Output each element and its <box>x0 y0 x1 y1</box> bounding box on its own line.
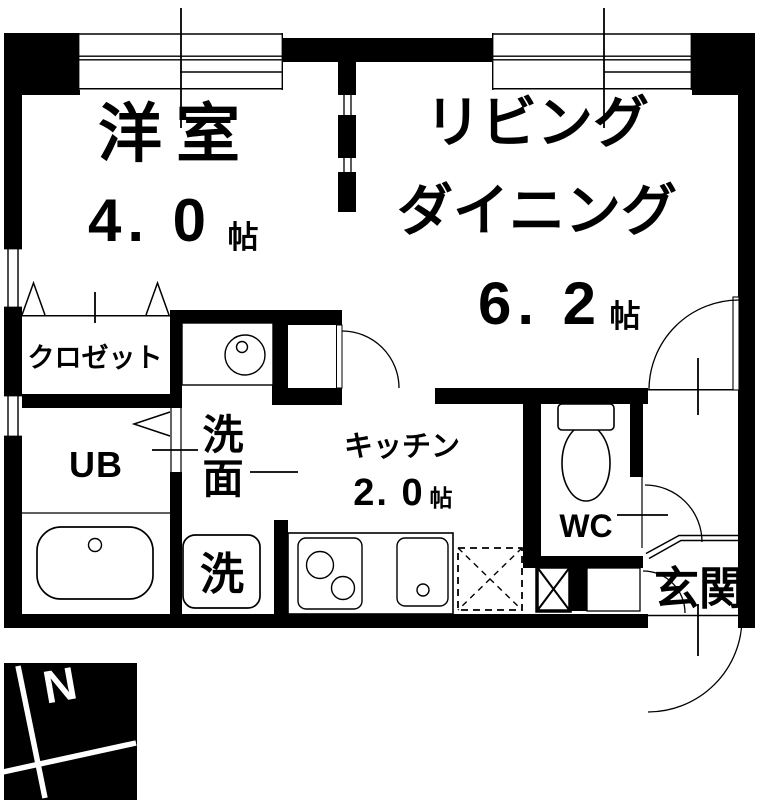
window-left-western <box>4 248 22 308</box>
label-entrance: 玄関 <box>654 563 744 614</box>
wall-living-south <box>435 388 648 404</box>
kitchen-sink-drain-icon <box>417 584 429 596</box>
wall-washroom-south <box>272 388 342 405</box>
bathtub-icon <box>37 527 153 599</box>
wall-bottom-left <box>4 614 648 628</box>
wall-washroom-right-lower <box>274 520 288 614</box>
label-living-line1: リビング <box>425 91 649 154</box>
wall-ub-right <box>170 472 182 614</box>
burner-icon <box>307 552 334 579</box>
sink-faucet-icon <box>237 342 248 353</box>
wall-left <box>4 38 22 628</box>
compass: N <box>3 657 137 800</box>
wall-wc-right <box>630 396 643 477</box>
label-kitchen-unit: 帖 <box>430 485 453 511</box>
wall-closet-right <box>170 310 182 408</box>
partition-panel <box>338 115 356 158</box>
label-western-size: 4. 0 <box>88 187 212 254</box>
label-wc: WC <box>559 508 612 544</box>
label-living-line2: ダイニング <box>397 179 677 242</box>
pipe-space-icon <box>537 567 570 611</box>
window-left-bath <box>4 395 22 437</box>
label-living-size: 6. 2 <box>478 270 602 337</box>
wall-closet-bottom <box>18 394 182 408</box>
label-washroom-line1: 洗 <box>203 412 244 458</box>
hall-door-leaf <box>733 297 739 390</box>
wall-kitchen-wc <box>523 396 541 568</box>
label-kitchen: キッチン <box>344 431 460 463</box>
shoe-cabinet <box>587 568 640 611</box>
sink-bowl-icon <box>225 335 265 375</box>
washroom-door-leaf <box>337 325 343 388</box>
wall-entrance-cabinet <box>570 567 587 611</box>
label-washroom-line2: 面 <box>203 456 244 502</box>
partition-panel <box>338 55 356 95</box>
label-kitchen-size: 2. 0 <box>353 472 424 514</box>
label-living-unit: 帖 <box>610 299 641 334</box>
burner-icon <box>332 577 355 600</box>
bathtub-drain-icon <box>89 539 102 552</box>
floor-plan: 洋室 4. 0 帖 リビング ダイニング 6. 2 帖 クロゼット UB 洗 面… <box>0 0 770 800</box>
toilet-tank-icon <box>558 404 614 430</box>
label-laundry: 洗 <box>200 550 244 599</box>
toilet-bowl-icon <box>562 425 610 501</box>
label-western-room: 洋室 <box>98 98 254 170</box>
label-unit-bath: UB <box>69 444 123 485</box>
partition-panel <box>338 172 356 212</box>
wall-washroom-right-upper <box>272 323 288 388</box>
floor-plan-drawing: 洋室 4. 0 帖 リビング ダイニング 6. 2 帖 クロゼット UB 洗 面… <box>0 0 770 800</box>
wall-right <box>738 38 755 628</box>
label-western-unit: 帖 <box>228 220 259 255</box>
label-closet: クロゼット <box>28 343 163 373</box>
